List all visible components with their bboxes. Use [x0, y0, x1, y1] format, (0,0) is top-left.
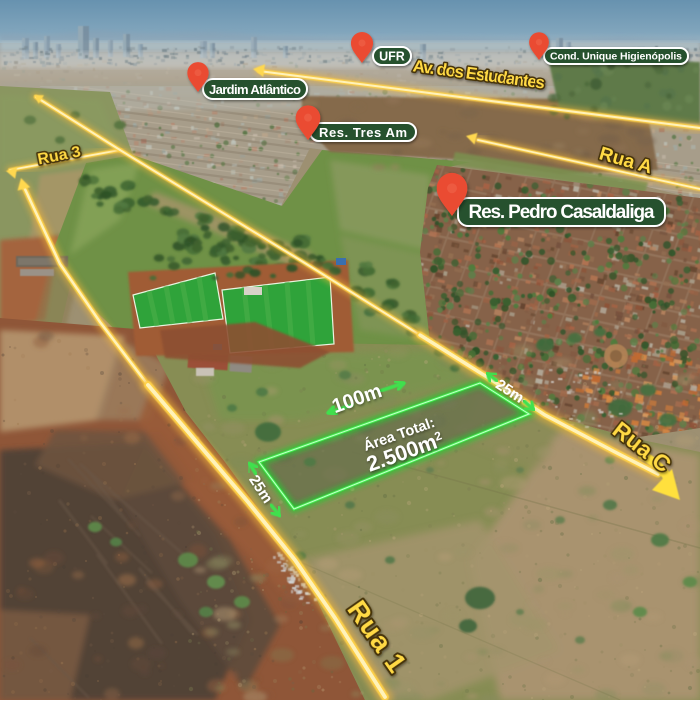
- svg-text:Jardim Atlântico: Jardim Atlântico: [209, 82, 301, 97]
- svg-text:UFR: UFR: [379, 50, 405, 64]
- svg-text:Cond. Unique Higienópolis: Cond. Unique Higienópolis: [550, 51, 682, 63]
- svg-text:Res. Tres Am: Res. Tres Am: [319, 125, 407, 140]
- svg-text:Res. Pedro Casaldaliga: Res. Pedro Casaldaliga: [469, 202, 655, 223]
